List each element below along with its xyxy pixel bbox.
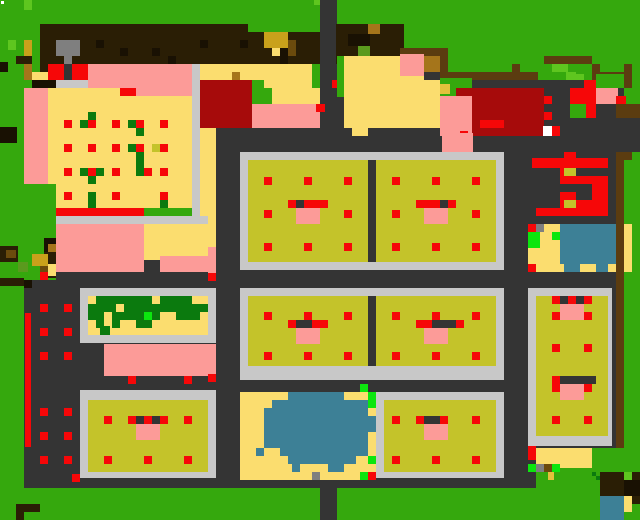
sand-block-south <box>144 224 208 260</box>
dark-block-west <box>0 127 17 143</box>
dark-row <box>32 80 56 88</box>
crop-red <box>392 456 400 464</box>
tree-east-tan <box>368 24 380 34</box>
pond-sw <box>280 448 368 456</box>
red-cell <box>316 104 325 112</box>
pond-sw <box>264 408 368 416</box>
plaza-dot <box>64 304 72 312</box>
garden-light <box>552 64 568 72</box>
sand-cell <box>352 128 368 136</box>
white-pixel <box>1 1 4 4</box>
red-cell <box>552 126 560 136</box>
trunk-col-east <box>616 160 624 448</box>
red-dot <box>128 376 136 384</box>
crop-red <box>432 456 440 464</box>
bush <box>100 326 110 335</box>
village-map[interactable] <box>0 0 640 520</box>
pink-column <box>24 88 48 184</box>
animal-red <box>448 200 456 208</box>
lime-cell <box>368 456 376 464</box>
fence-cell <box>616 152 632 160</box>
lime-cell <box>528 464 536 472</box>
animal-red <box>288 320 296 328</box>
plaza-dot <box>72 474 80 482</box>
pond-ne-leg <box>564 264 580 272</box>
canopy-spot <box>168 56 176 64</box>
sprout <box>80 120 88 128</box>
fence <box>624 64 632 88</box>
pink-block-ne <box>252 104 320 128</box>
animal-dark <box>560 376 596 384</box>
sprout <box>596 476 600 480</box>
trunk-tan <box>48 244 56 252</box>
red-dot <box>40 272 48 280</box>
sprout <box>136 152 144 168</box>
animal-dark <box>136 416 144 424</box>
tree-bar-west <box>0 278 24 286</box>
animal-red <box>552 376 560 392</box>
crop-olive <box>152 144 160 152</box>
animal-red <box>312 320 328 328</box>
red-cell <box>544 112 552 120</box>
crop-red <box>472 243 480 251</box>
sprout <box>128 120 136 128</box>
gold-cell <box>440 84 450 94</box>
animal-pink[interactable] <box>424 424 448 440</box>
bush <box>88 304 116 312</box>
house-roof-brown <box>424 56 440 72</box>
animal-red <box>128 416 136 424</box>
grass-block-ne <box>252 88 272 104</box>
sprout <box>88 112 96 120</box>
canopy-brown <box>288 40 296 56</box>
red-cell <box>544 96 552 104</box>
crop-red <box>136 120 144 128</box>
animal-pink[interactable] <box>424 328 448 344</box>
monument-red <box>592 184 608 200</box>
animal-pink[interactable] <box>136 424 160 440</box>
tree-canopy-row <box>40 24 248 32</box>
plot-divider <box>368 296 376 366</box>
animal-dark <box>152 416 160 424</box>
tree-east-olive <box>358 46 370 56</box>
tree-west-light <box>8 40 16 50</box>
bush <box>176 312 200 320</box>
grass-sliver <box>337 56 344 97</box>
red-dot <box>528 264 536 272</box>
animal-pink[interactable] <box>560 384 584 400</box>
red-block <box>72 64 88 80</box>
tree-east-dark <box>348 34 370 46</box>
pond-sw-dot <box>256 448 264 456</box>
sprout <box>136 128 144 136</box>
wall-gray <box>192 64 200 224</box>
crop-red <box>472 177 480 185</box>
crop-red <box>184 416 192 424</box>
dark-gap <box>64 64 72 80</box>
crop-red <box>88 168 96 176</box>
bush-lime <box>144 312 152 320</box>
crop-red <box>64 144 72 152</box>
plaza-dot <box>40 408 48 416</box>
red-line[interactable] <box>25 313 31 447</box>
plaza-dot <box>40 456 48 464</box>
crop-red <box>88 144 96 152</box>
animal-pink[interactable] <box>296 328 320 344</box>
pond-sw-leg <box>328 464 344 472</box>
crop-red <box>432 243 440 251</box>
lime-cell <box>360 384 368 392</box>
crop-red <box>64 120 72 128</box>
crop-red <box>584 416 592 424</box>
red-dot2 <box>528 446 536 460</box>
pink-cell <box>136 88 192 96</box>
animal-red <box>440 416 448 424</box>
animal-dark <box>440 200 448 208</box>
crop-red <box>264 352 272 360</box>
pink-slab-south[interactable] <box>104 344 216 376</box>
plaza-dot <box>64 432 72 440</box>
pink-house-band[interactable] <box>88 64 192 88</box>
red-dot <box>208 374 216 382</box>
bush <box>160 296 192 304</box>
red-strip <box>208 273 216 281</box>
tree-bar-west2 <box>24 280 32 288</box>
log-sw <box>16 504 40 512</box>
bush <box>112 320 120 328</box>
crop-red <box>472 456 480 464</box>
red-building-west[interactable] <box>200 80 252 128</box>
monument-red[interactable] <box>532 158 608 168</box>
gray-cell <box>536 464 544 472</box>
animal-red <box>416 416 424 424</box>
animal-red <box>584 384 592 392</box>
sprout <box>160 200 168 208</box>
lime-cell <box>552 464 560 472</box>
sand-block-ne <box>272 88 320 104</box>
field-nw-top <box>48 88 120 96</box>
tree-west-tan <box>24 64 32 80</box>
crop-red <box>104 416 112 424</box>
crop-red <box>344 312 352 320</box>
brown-block-ne <box>616 104 640 118</box>
red-door <box>480 120 504 128</box>
tree-se-dark <box>624 480 640 496</box>
canopy-spot <box>152 48 160 56</box>
house-pink-door <box>400 54 424 76</box>
crop-red <box>264 177 272 185</box>
house-dark <box>424 72 440 80</box>
crop-red <box>160 168 168 176</box>
crop-red <box>264 243 272 251</box>
crop-red <box>472 312 480 320</box>
gold-cell <box>548 472 554 480</box>
crop-red <box>344 243 352 251</box>
grass-patch-ne2 <box>570 104 586 118</box>
crop-red <box>112 120 120 128</box>
sand-strip2 <box>208 216 216 247</box>
animal-red <box>416 320 432 328</box>
gray-cell <box>536 224 544 232</box>
tree-west <box>16 56 32 64</box>
road-south-stub <box>320 488 337 520</box>
crop-red <box>88 120 96 128</box>
monument-red <box>560 192 576 200</box>
crop-red <box>144 456 152 464</box>
tan-spot <box>232 72 240 80</box>
crop-red <box>392 177 400 185</box>
plaza-dot <box>64 456 72 464</box>
sprout <box>96 168 104 176</box>
red-block-ne <box>570 88 596 104</box>
branch-gold <box>32 254 48 266</box>
monument-red <box>536 208 608 216</box>
fence <box>440 56 448 72</box>
crop-red <box>552 312 560 320</box>
plaza-dot <box>40 352 48 360</box>
crop-red <box>304 243 312 251</box>
house-yellow-south <box>344 96 440 128</box>
animal-pink[interactable] <box>424 208 448 224</box>
sprout <box>88 176 96 184</box>
crop-red <box>144 168 152 176</box>
crop-red <box>104 456 112 464</box>
red-cell <box>586 104 596 118</box>
crop-red <box>160 144 168 152</box>
red-bar <box>56 208 144 216</box>
plaza-dot <box>64 352 72 360</box>
plot-divider <box>368 160 376 262</box>
animal-dark <box>432 320 456 328</box>
pond-se[interactable] <box>600 496 624 520</box>
crop-red <box>552 416 560 424</box>
gray-band-south <box>56 216 208 224</box>
crop-red <box>112 192 120 200</box>
gray-dot <box>312 472 320 480</box>
leaf-olive <box>18 262 28 272</box>
pink-block-east <box>440 96 472 136</box>
crop-red <box>584 344 592 352</box>
crop-red <box>344 210 352 218</box>
crop-red <box>184 456 192 464</box>
crop-red <box>472 352 480 360</box>
animal-red <box>552 296 560 304</box>
bush <box>136 320 152 328</box>
plaza-dot <box>40 304 48 312</box>
canopy-gold <box>264 32 288 48</box>
monument-olive <box>564 200 576 208</box>
plaza-dot <box>64 328 72 336</box>
crop-red <box>392 416 400 424</box>
pond-sw <box>288 456 356 464</box>
crop-red <box>392 352 400 360</box>
crop-red <box>264 210 272 218</box>
bush <box>96 296 152 304</box>
animal-dark <box>424 416 440 424</box>
canopy-spot <box>200 40 208 48</box>
pink-bar-ne <box>596 88 618 104</box>
bush <box>88 312 104 320</box>
sand-row-north <box>216 64 312 80</box>
crop-red <box>584 312 592 320</box>
plaza-dot <box>40 432 48 440</box>
sprout <box>128 144 136 152</box>
charcoal-cut <box>616 118 640 152</box>
leaf-light <box>624 472 632 480</box>
tree-west-dark <box>0 62 8 72</box>
red-cell <box>616 96 626 104</box>
garden-light <box>572 74 584 80</box>
animal-dark <box>576 296 584 304</box>
pond-sw <box>272 400 368 408</box>
crop-red <box>64 168 72 176</box>
pond-ne <box>560 240 624 264</box>
canopy-spot <box>96 40 104 48</box>
lime-cell <box>360 472 368 480</box>
sprout <box>80 168 88 176</box>
pond-ne-leg <box>596 264 608 272</box>
pink-slab-west[interactable] <box>56 224 144 272</box>
log-sw <box>16 512 24 520</box>
pond-sw[interactable] <box>264 416 376 432</box>
animal-red <box>304 200 328 208</box>
crop-red <box>112 168 120 176</box>
red-dot <box>184 376 192 384</box>
crop-red <box>264 312 272 320</box>
crop-red <box>64 192 72 200</box>
tree-west-gold <box>24 40 32 56</box>
crop-red <box>160 192 168 200</box>
sprout <box>136 168 144 176</box>
crop-red <box>304 177 312 185</box>
pink-row-south <box>160 256 216 272</box>
canopy-spot <box>120 48 128 56</box>
bush <box>124 304 208 312</box>
crop-red <box>472 416 480 424</box>
animal-red <box>144 416 152 424</box>
plaza-dot <box>40 328 48 336</box>
red-dot <box>368 472 376 480</box>
bush <box>152 312 160 320</box>
tree-canopy-south <box>40 64 48 72</box>
crop-red <box>392 210 400 218</box>
animal-red <box>456 320 464 328</box>
crop-red <box>472 210 480 218</box>
canopy-spot <box>240 40 248 48</box>
pond-ne[interactable] <box>560 224 616 240</box>
animal-pink[interactable] <box>560 304 584 320</box>
gray-row <box>56 80 88 88</box>
brown-cell <box>544 464 552 472</box>
crop-red <box>392 312 400 320</box>
garden-frame <box>544 56 592 64</box>
sprout <box>88 192 96 208</box>
grass-cell <box>252 80 264 88</box>
plaza-dot <box>64 408 72 416</box>
fence-post <box>512 64 520 72</box>
grass-light-nw <box>24 0 32 10</box>
lime-cell <box>368 392 376 408</box>
pond-sw-leg <box>292 464 300 472</box>
crop-red <box>432 352 440 360</box>
lime-cell <box>528 232 540 248</box>
bush <box>112 312 144 320</box>
crop-red <box>432 312 440 320</box>
road-north-east <box>337 97 344 128</box>
crop-red <box>344 177 352 185</box>
crop-red <box>304 312 312 320</box>
animal-pink[interactable] <box>296 208 320 224</box>
pond-sw <box>264 432 368 448</box>
red-dot <box>528 224 536 232</box>
animal-dark <box>296 200 304 208</box>
grass-ne-corner <box>596 74 624 88</box>
crop-red <box>552 344 560 352</box>
red-cell <box>584 80 596 88</box>
animal-dark <box>296 320 312 328</box>
crop-red <box>392 243 400 251</box>
red-block <box>48 64 64 80</box>
animal-red <box>568 296 576 304</box>
animal-red <box>416 200 440 208</box>
canopy-sand <box>272 48 280 56</box>
grass-col-ne <box>312 64 320 88</box>
crop-red <box>432 177 440 185</box>
red-cell <box>120 88 136 96</box>
sand-row <box>264 80 312 88</box>
crop-red <box>304 352 312 360</box>
grass-cell <box>632 152 640 160</box>
animal-red <box>584 296 592 304</box>
sand-strip-east <box>200 128 216 216</box>
crop-red <box>136 144 144 152</box>
tree-blob-west2 <box>6 250 16 258</box>
sand-cell <box>200 64 216 80</box>
pink-block-road[interactable] <box>442 133 473 152</box>
sand-cell <box>48 264 56 276</box>
pond-sw <box>288 392 344 400</box>
sand-cell <box>624 496 632 512</box>
animal-red <box>288 200 296 208</box>
crop-red <box>112 144 120 152</box>
white-cell <box>543 126 552 136</box>
animal-dark <box>560 296 568 304</box>
animal-red <box>160 416 168 424</box>
crop-red <box>160 120 168 128</box>
canopy-dark <box>280 48 288 64</box>
monument-red <box>560 176 608 184</box>
stone-block <box>56 40 80 56</box>
crop-red <box>344 352 352 360</box>
